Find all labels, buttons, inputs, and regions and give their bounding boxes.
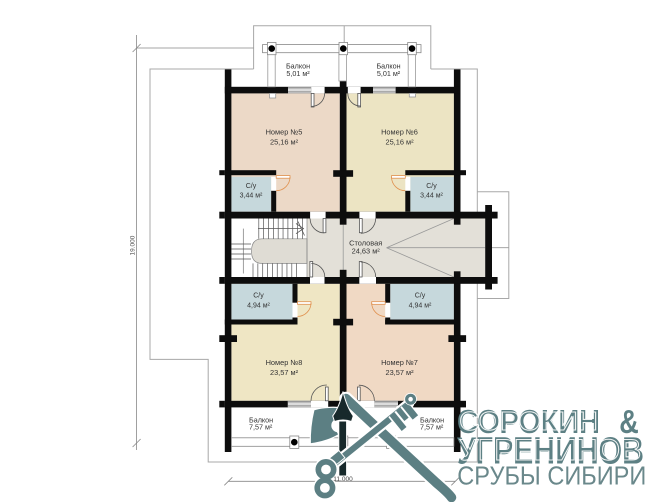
svg-text:5,01 м²: 5,01 м² [286, 69, 310, 78]
svg-text:23,57 м²: 23,57 м² [270, 368, 299, 377]
svg-text:Номер №8: Номер №8 [266, 358, 303, 367]
svg-text:7,57 м²: 7,57 м² [249, 423, 273, 432]
svg-text:С/у: С/у [246, 183, 257, 190]
svg-text:19.000: 19.000 [130, 235, 137, 255]
svg-text:4,94 м²: 4,94 м² [409, 303, 432, 310]
svg-text:С/у: С/у [253, 293, 264, 300]
svg-text:25,16 м²: 25,16 м² [270, 138, 299, 147]
svg-text:7,57 м²: 7,57 м² [420, 423, 444, 432]
svg-text:24,63 м²: 24,63 м² [352, 247, 381, 256]
svg-text:11.000: 11.000 [333, 476, 353, 483]
svg-text:С/у: С/у [415, 293, 426, 300]
svg-text:23,57 м²: 23,57 м² [385, 368, 414, 377]
svg-text:Номер №6: Номер №6 [381, 128, 418, 137]
svg-text:Номер №7: Номер №7 [381, 358, 418, 367]
svg-text:4,94 м²: 4,94 м² [247, 303, 270, 310]
svg-text:25,16 м²: 25,16 м² [385, 138, 414, 147]
svg-text:Номер №5: Номер №5 [266, 128, 303, 137]
svg-text:5,01 м²: 5,01 м² [377, 69, 401, 78]
svg-text:3,44 м²: 3,44 м² [420, 192, 443, 199]
svg-text:СРУБЫ СИБИРИ: СРУБЫ СИБИРИ [457, 460, 646, 490]
svg-text:С/у: С/у [426, 183, 437, 190]
svg-text:3,44 м²: 3,44 м² [240, 192, 263, 199]
